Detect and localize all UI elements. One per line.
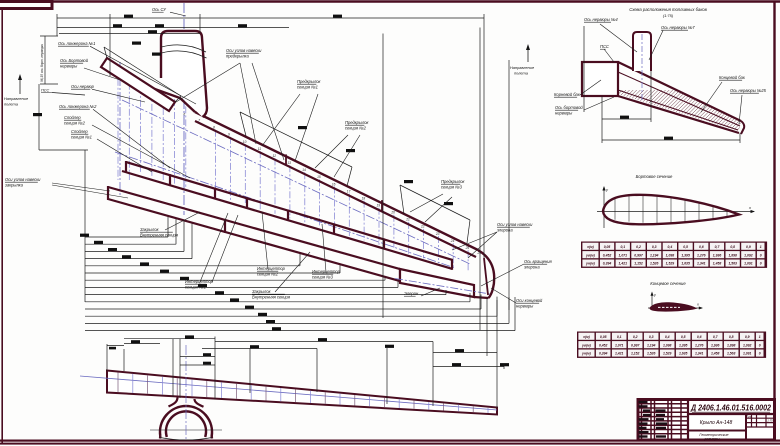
svg-text:секция №3: секция №3 [441,185,463,190]
svg-text:1,529: 1,529 [663,352,672,356]
svg-text:22: 22 [420,225,425,229]
svg-text:1,563: 1,563 [727,352,736,356]
svg-text:1,341: 1,341 [695,352,704,356]
svg-text:размеры: размеры [703,437,719,441]
svg-text:секция №2: секция №2 [257,272,279,277]
svg-text:1,421: 1,421 [619,262,628,266]
svg-text:Концевой бак: Концевой бак [719,75,746,80]
svg-text:элерона: элерона [524,265,540,270]
svg-text:1,563: 1,563 [728,262,737,266]
svg-text:0,6: 0,6 [697,335,702,339]
svg-text:1,421: 1,421 [615,352,624,356]
svg-text:1,152: 1,152 [634,262,643,266]
svg-text:0,6: 0,6 [699,245,704,249]
svg-text:0,1: 0,1 [620,245,625,249]
svg-text:19: 19 [377,204,381,208]
svg-text:1,194: 1,194 [650,253,659,257]
svg-text:1: 1 [759,335,761,339]
svg-text:0,5: 0,5 [683,245,688,249]
svg-text:Оси узлов навески: Оси узлов навески [226,48,262,53]
svg-text:Интерцептор: Интерцептор [312,269,341,274]
svg-text:0,394: 0,394 [599,352,608,356]
svg-text:Д 2406.1.46.01.516.0002: Д 2406.1.46.01.516.0002 [690,404,772,413]
svg-text:Крыло Ан-148: Крыло Ан-148 [700,420,733,426]
svg-text:0,997: 0,997 [634,253,644,257]
svg-text:1,098: 1,098 [666,253,675,257]
svg-text:21: 21 [405,218,410,222]
svg-text:нервюры: нервюры [555,111,572,116]
svg-text:0,8: 0,8 [729,335,734,339]
svg-text:1,635: 1,635 [681,262,690,266]
svg-text:0,394: 0,394 [603,262,612,266]
svg-text:1: 1 [760,245,762,249]
svg-text:Направление: Направление [4,96,29,101]
svg-text:Внутренняя секция: Внутренняя секция [140,233,179,238]
svg-text:Ось Бортовой: Ось Бортовой [60,58,89,63]
svg-text:1,152: 1,152 [631,352,640,356]
svg-text:0,05: 0,05 [600,335,607,339]
svg-text:секция №3: секция №3 [312,275,334,280]
svg-text:0,2: 0,2 [633,335,638,339]
svg-text:1,395: 1,395 [679,343,688,347]
svg-text:0,4: 0,4 [665,335,670,339]
svg-text:Спойлер: Спойлер [71,129,88,134]
svg-text:Оси концевой: Оси концевой [516,298,543,303]
svg-text:полета: полета [4,102,19,107]
svg-text:0,2: 0,2 [636,245,641,249]
svg-text:Закрылок: Закрылок [140,227,160,232]
svg-text:Предкрылок: Предкрылок [345,120,370,125]
svg-text:17: 17 [347,189,351,193]
svg-text:1,635: 1,635 [679,352,688,356]
svg-text:1,091: 1,091 [744,262,753,266]
svg-text:0,9: 0,9 [745,335,750,339]
svg-text:Ось вращения: Ось вращения [524,259,553,264]
svg-text:1,071: 1,071 [615,343,624,347]
svg-text:Ось СУ: Ось СУ [152,7,166,12]
svg-text:0,9: 0,9 [746,245,751,249]
svg-text:ПСС: ПСС [41,89,49,93]
svg-text:Бортовое сечение: Бортовое сечение [636,174,673,179]
svg-text:0,05: 0,05 [604,245,611,249]
svg-text:Оси узлов навески: Оси узлов навески [497,222,533,227]
svg-text:x(м): x(м) [582,335,591,339]
svg-text:1,091: 1,091 [743,352,752,356]
svg-text:96,35 ось борт. нервюры: 96,35 ось борт. нервюры [40,43,44,82]
svg-text:(1:75): (1:75) [663,13,674,18]
svg-text:yв(м): yв(м) [585,253,596,257]
svg-text:yн(м): yн(м) [581,352,592,356]
svg-text:Оси узлов навески: Оси узлов навески [5,177,41,182]
svg-text:1,936: 1,936 [713,253,722,257]
svg-text:1,092: 1,092 [743,343,752,347]
svg-text:1,936: 1,936 [711,343,720,347]
svg-text:0,452: 0,452 [603,253,612,257]
svg-text:Ось бортовой: Ось бортовой [555,105,583,110]
svg-text:Ось лонжерона №2: Ось лонжерона №2 [59,104,97,109]
svg-text:14: 14 [302,168,306,172]
svg-text:1,458: 1,458 [711,352,720,356]
svg-text:20: 20 [390,211,395,215]
svg-text:Спойлер: Спойлер [64,115,81,120]
svg-text:1,395: 1,395 [681,253,690,257]
svg-text:секция №2: секция №2 [64,121,86,126]
svg-text:x(м): x(м) [586,245,595,249]
svg-text:Внутренняя секция: Внутренняя секция [252,295,291,300]
svg-text:13: 13 [287,161,291,165]
svg-text:1,098: 1,098 [663,343,672,347]
svg-text:12: 12 [273,154,277,158]
svg-text:Оси нервюр: Оси нервюр [71,84,95,89]
svg-text:1,276: 1,276 [697,253,706,257]
svg-text:предкрылка: предкрылка [226,54,249,59]
svg-text:Предкрылок: Предкрылок [441,179,466,184]
svg-text:0,4: 0,4 [668,245,673,249]
svg-text:Элерон: Элерон [404,291,419,296]
svg-text:0,5: 0,5 [681,335,686,339]
svg-text:0,997: 0,997 [631,343,641,347]
svg-text:18: 18 [362,196,366,200]
svg-text:Интерцептор: Интерцептор [257,266,286,271]
svg-text:0: 0 [760,262,762,266]
svg-text:Корневой бак: Корневой бак [554,92,581,97]
svg-text:23: 23 [435,232,440,236]
svg-text:1,529: 1,529 [666,262,675,266]
svg-text:1:75: 1:75 [767,418,773,422]
svg-text:нервюры: нервюры [60,64,77,69]
svg-text:11: 11 [258,147,262,151]
svg-text:1,458: 1,458 [713,262,722,266]
svg-text:15: 15 [317,175,321,179]
svg-text:ПСС: ПСС [600,44,609,49]
svg-text:0,452: 0,452 [599,343,608,347]
svg-text:1,194: 1,194 [647,343,656,347]
svg-text:Концевое сечение: Концевое сечение [650,281,686,286]
svg-text:закрылка: закрылка [4,183,24,188]
svg-text:1,092: 1,092 [744,253,753,257]
svg-text:yв(м): yв(м) [581,343,592,347]
svg-text:Схема расположения топливных б: Схема расположения топливных баков [629,7,707,12]
svg-text:секция №1: секция №1 [185,285,206,290]
svg-text:элерона: элерона [497,228,513,233]
svg-text:Ось нервюры №7: Ось нервюры №7 [661,25,695,30]
svg-text:1,898: 1,898 [728,253,737,257]
svg-text:yн(м): yн(м) [585,262,596,266]
svg-text:секция №2: секция №2 [345,126,367,131]
svg-text:0: 0 [760,253,762,257]
svg-text:0,3: 0,3 [652,245,657,249]
svg-text:Предкрылок: Предкрылок [297,79,322,84]
svg-text:16: 16 [332,182,336,186]
svg-text:0,8: 0,8 [730,245,735,249]
svg-text:секция №1: секция №1 [297,85,318,90]
svg-text:Ось лонжерона №1: Ось лонжерона №1 [58,41,95,46]
svg-text:0,1: 0,1 [617,335,622,339]
svg-text:полета: полета [514,71,529,76]
svg-text:Интерцептор: Интерцептор [185,279,214,284]
svg-text:Закрылок: Закрылок [252,289,272,294]
svg-text:0: 0 [759,352,761,356]
svg-text:нервюры: нервюры [516,304,533,309]
svg-text:Лит: Лит [745,416,751,418]
svg-text:1,526: 1,526 [647,352,656,356]
svg-text:Ось нервюры №4: Ось нервюры №4 [584,17,618,22]
svg-text:0,3: 0,3 [649,335,654,339]
svg-text:1,526: 1,526 [650,262,659,266]
svg-text:1,071: 1,071 [619,253,628,257]
svg-text:1,276: 1,276 [695,343,704,347]
svg-text:Направление: Направление [510,65,535,70]
svg-text:Ось нервюры №25: Ось нервюры №25 [730,88,767,93]
svg-text:1,898: 1,898 [727,343,736,347]
svg-text:0: 0 [759,343,761,347]
svg-text:секция №1: секция №1 [71,135,92,140]
svg-text:1,341: 1,341 [697,262,706,266]
